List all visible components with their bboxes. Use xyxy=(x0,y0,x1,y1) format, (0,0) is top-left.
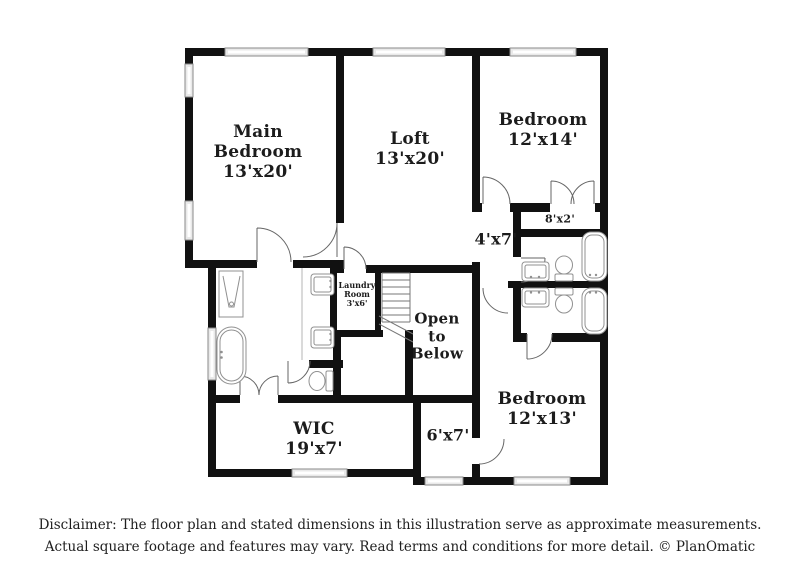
disclaimer-text: Disclaimer: The floor plan and stated di… xyxy=(0,514,800,558)
room-label-closet-6x7: 6'x7' xyxy=(418,427,478,446)
door-hall-lower xyxy=(483,288,508,313)
room-label-closet-8x2: 8'x2' xyxy=(530,214,590,227)
room-label-open-to-below: Open to Below xyxy=(409,310,465,363)
window xyxy=(208,328,216,380)
floor-plan-page: Main Bedroom 13'x20' Loft 13'x20' Bedroo… xyxy=(0,0,800,582)
door-water-closet xyxy=(288,361,310,383)
bath-upper-fixtures xyxy=(522,232,607,281)
room-label-wic: WIC 19'x7' xyxy=(264,419,364,459)
door-closet-double-right xyxy=(571,181,594,204)
window xyxy=(292,469,347,477)
disclaimer-line-2: Actual square footage and features may v… xyxy=(0,536,800,558)
room-label-bedroom-upper: Bedroom 12'x14' xyxy=(493,110,593,150)
floor-plan-drawing xyxy=(0,0,800,582)
window xyxy=(185,64,193,97)
window xyxy=(510,48,576,56)
disclaimer-line-1: Disclaimer: The floor plan and stated di… xyxy=(0,514,800,536)
room-label-bedroom-lower: Bedroom 12'x13' xyxy=(492,389,592,429)
main-bath-shower xyxy=(219,271,243,317)
door-bath-lower xyxy=(527,334,552,359)
water-closet-toilet xyxy=(309,371,333,391)
bath-lower-fixtures xyxy=(522,288,607,334)
staircase xyxy=(379,273,413,342)
room-label-laundry: Laundry Room 3'x6' xyxy=(336,281,378,309)
door-main-bathroom xyxy=(257,228,291,262)
door-wic-double-right xyxy=(259,376,278,395)
main-bath-vanity xyxy=(302,268,334,360)
main-bath-freestanding-tub xyxy=(217,327,246,384)
room-label-hall-4x7: 4'x7' xyxy=(466,231,526,250)
window xyxy=(514,477,570,485)
window xyxy=(225,48,308,56)
window xyxy=(185,201,193,240)
door-closet-double-left xyxy=(551,181,574,204)
door-closet-6x7 xyxy=(479,439,504,464)
window xyxy=(373,48,445,56)
window xyxy=(425,477,463,485)
room-label-main-bedroom: Main Bedroom 13'x20' xyxy=(204,122,312,182)
room-label-loft: Loft 13'x20' xyxy=(360,129,460,169)
door-laundry xyxy=(344,247,366,269)
door-bedroom-upper xyxy=(483,177,510,204)
door-main-bedroom-entry xyxy=(303,223,337,257)
